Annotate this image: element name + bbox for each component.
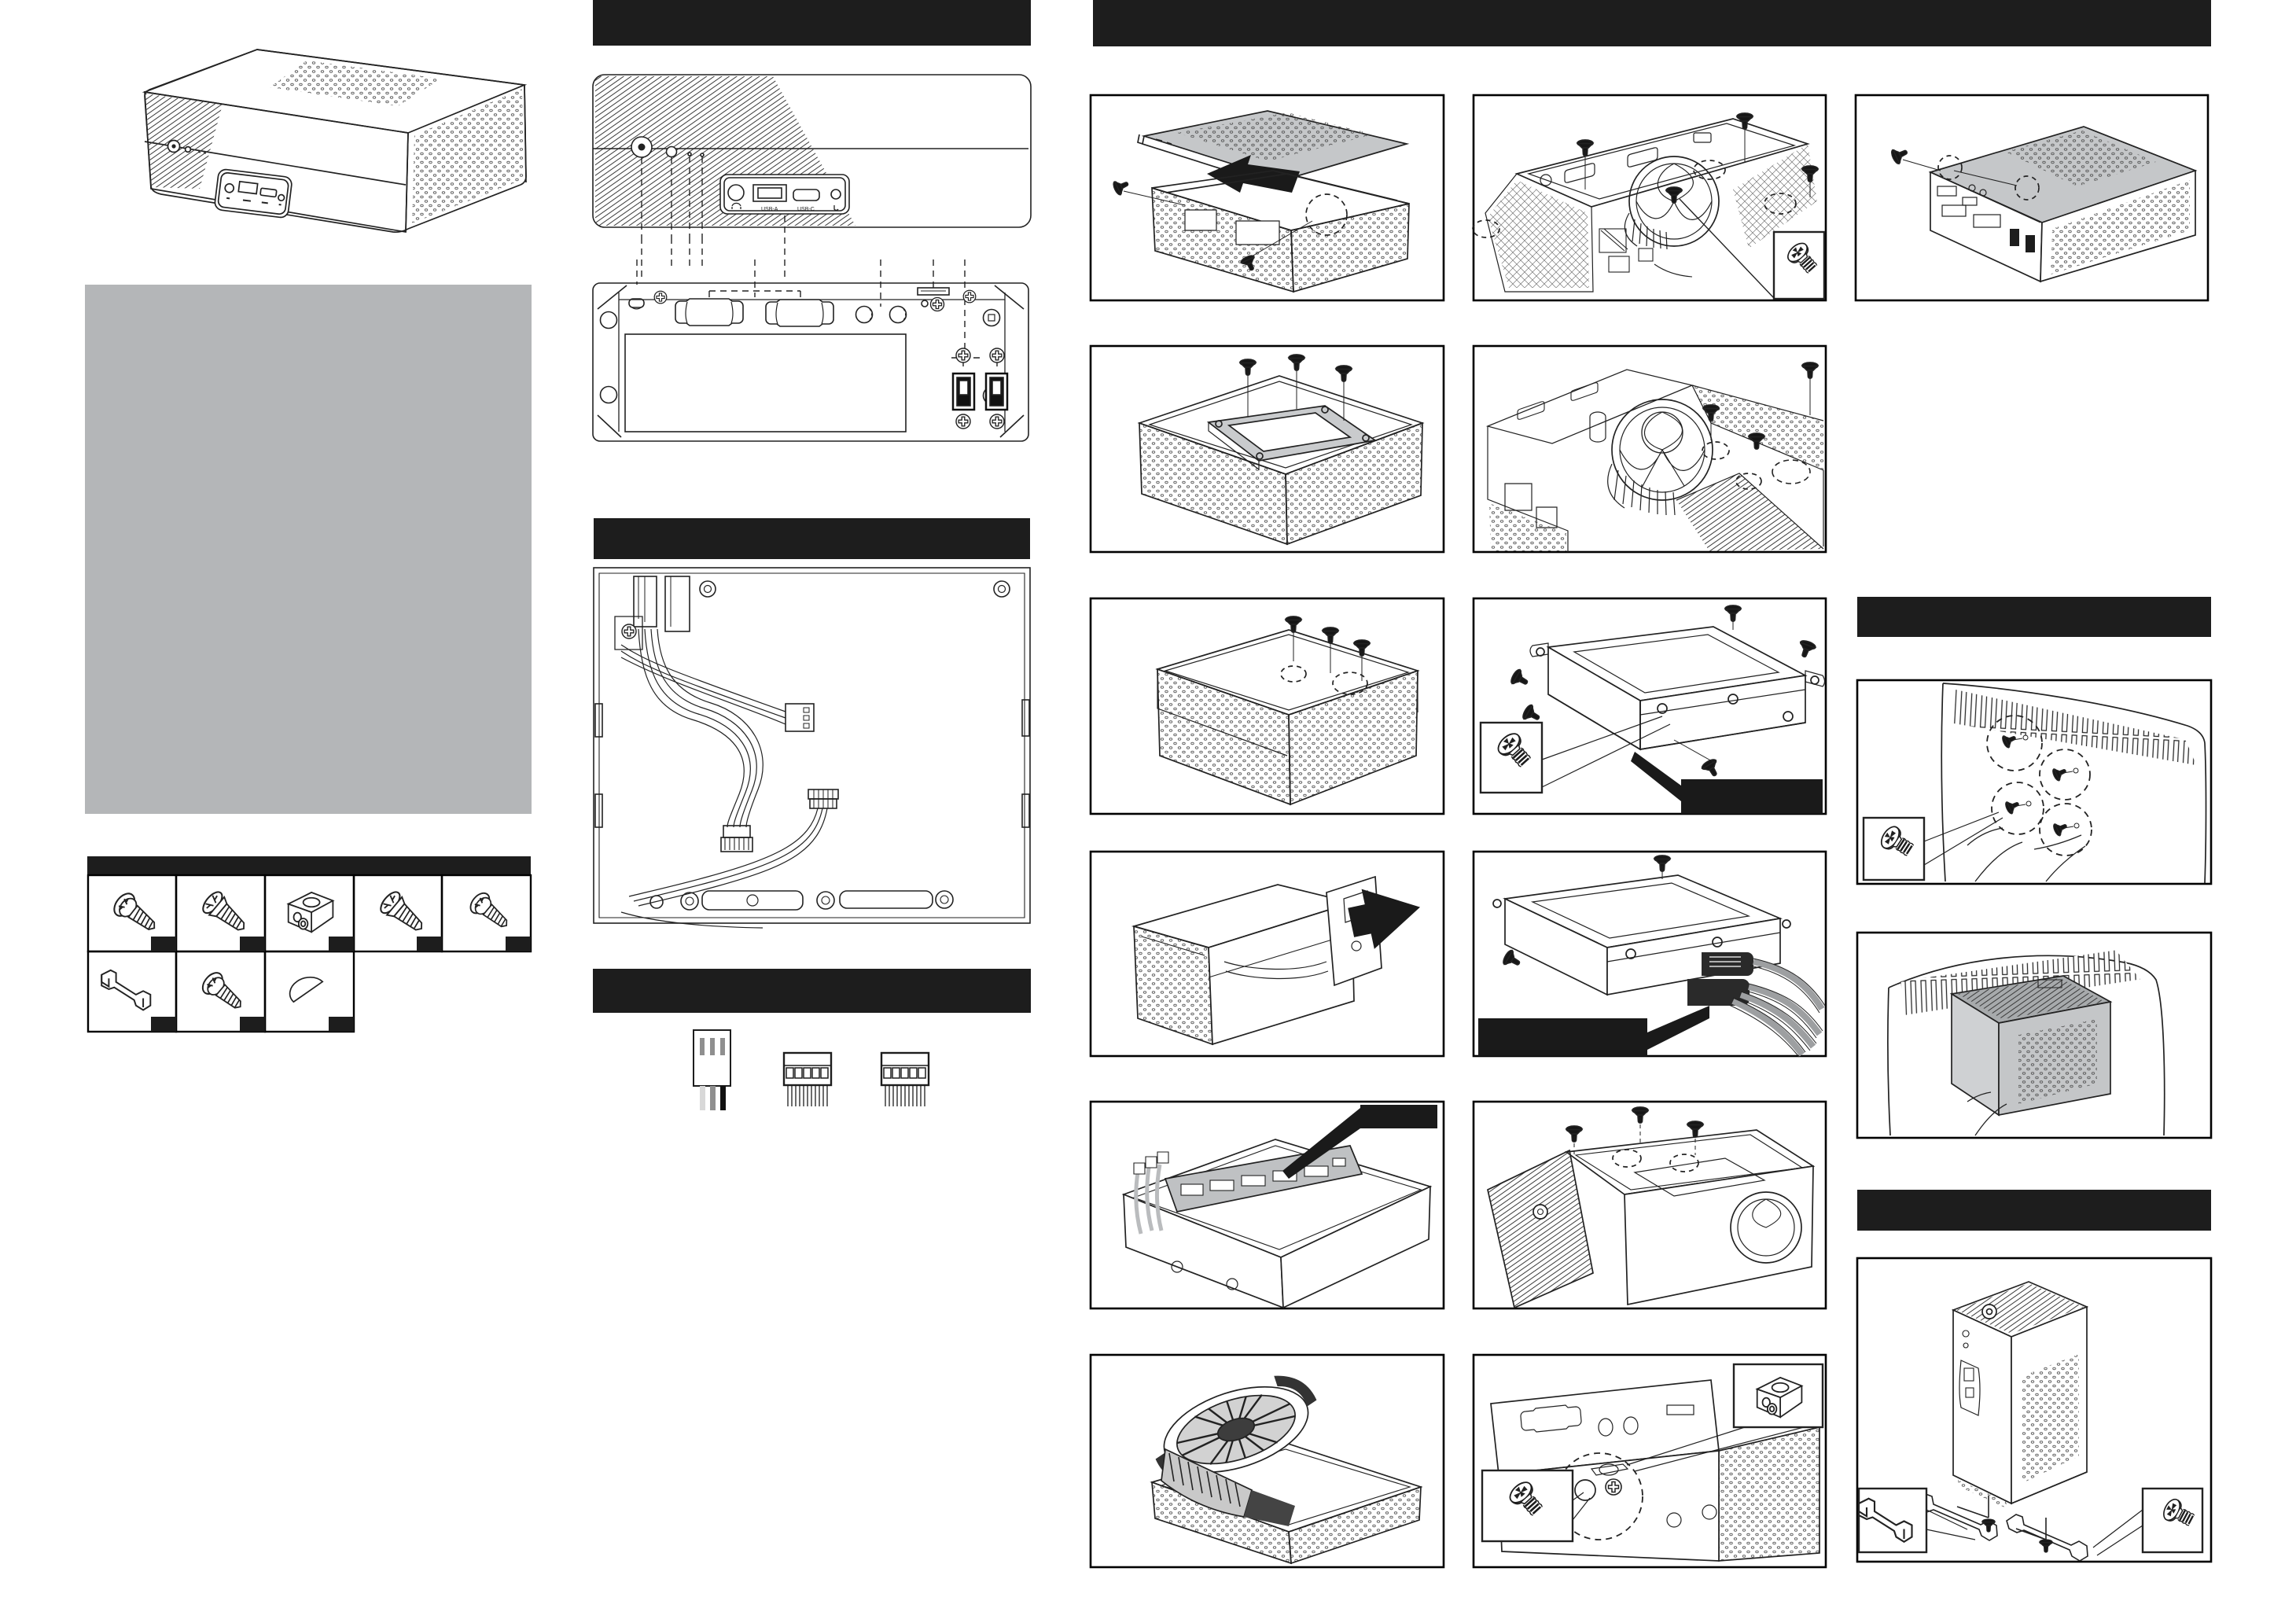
svg-text:USB-A: USB-A bbox=[761, 207, 778, 212]
svg-text:USB-C: USB-C bbox=[797, 207, 815, 212]
